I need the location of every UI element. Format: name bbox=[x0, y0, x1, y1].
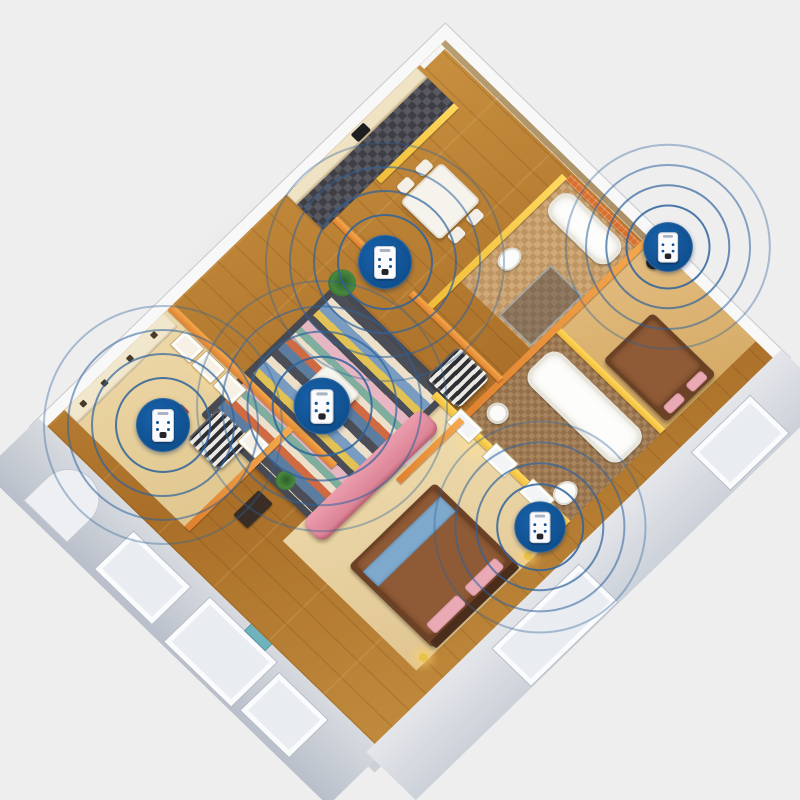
toilet bbox=[493, 243, 526, 275]
green-apple bbox=[328, 400, 336, 408]
red-stool bbox=[172, 404, 189, 420]
glass-wall-post bbox=[420, 58, 431, 69]
tablet bbox=[313, 382, 329, 398]
dining-table bbox=[400, 162, 481, 240]
bedside-lamp bbox=[417, 651, 430, 663]
console-table bbox=[233, 490, 273, 528]
sink bbox=[482, 398, 513, 428]
bathtub bbox=[542, 188, 627, 270]
double-bed bbox=[348, 483, 519, 649]
wall bbox=[332, 216, 386, 269]
bedside-lamp bbox=[522, 550, 535, 562]
product-scene bbox=[0, 0, 800, 800]
floor-lamp bbox=[643, 253, 663, 272]
